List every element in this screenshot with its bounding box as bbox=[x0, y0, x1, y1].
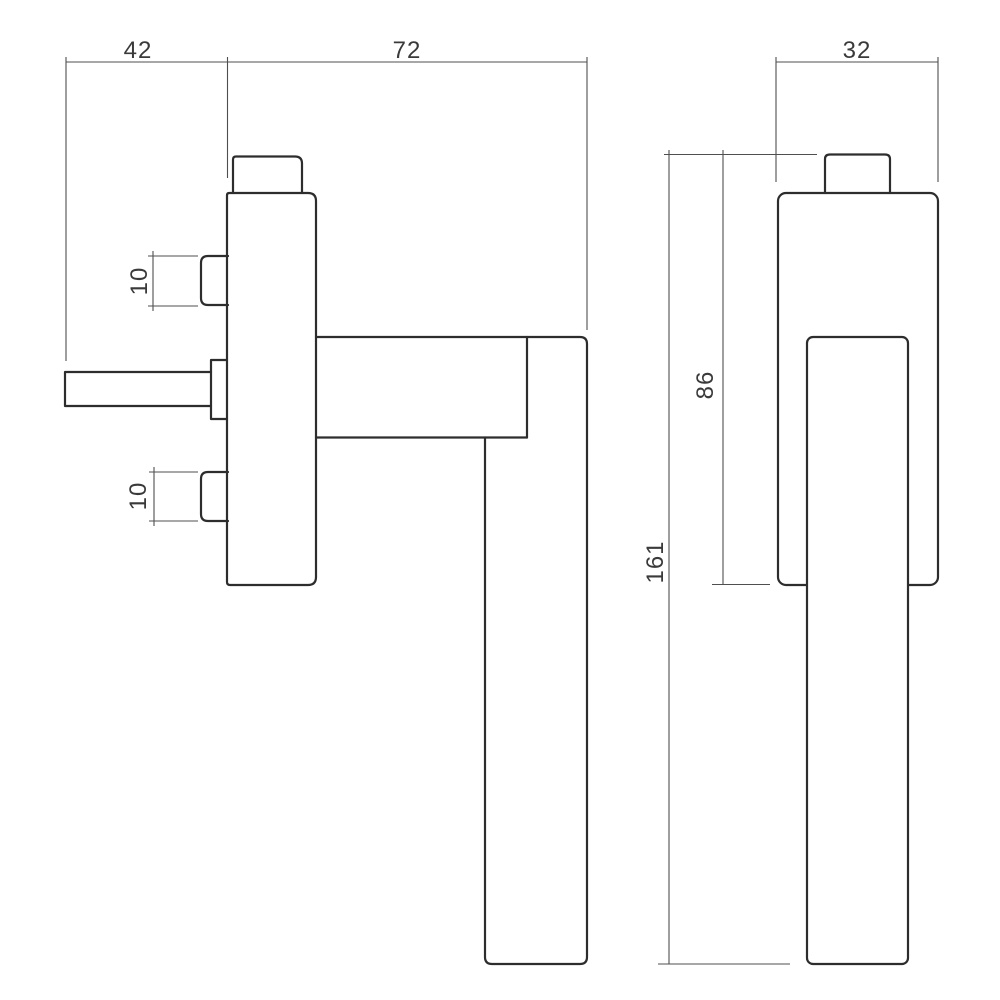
dim-label-32: 32 bbox=[843, 37, 872, 64]
technical-drawing-canvas: 42 72 10 10 bbox=[0, 0, 1000, 1000]
dimension-10-upper: 10 bbox=[126, 251, 198, 311]
dimension-86: 86 bbox=[692, 150, 770, 585]
dim-label-42: 42 bbox=[124, 37, 153, 64]
knob-front bbox=[825, 155, 890, 194]
handle-grip-front bbox=[807, 337, 908, 964]
side-view: 42 72 10 10 bbox=[65, 37, 587, 964]
dim-label-10-upper: 10 bbox=[126, 267, 153, 296]
backplate-side bbox=[227, 193, 316, 585]
dim-label-10-lower: 10 bbox=[125, 482, 152, 511]
handle-lever-side bbox=[316, 337, 587, 964]
dimension-32: 32 bbox=[776, 37, 938, 182]
screw-peg-lower bbox=[201, 472, 228, 521]
screw-peg-upper bbox=[201, 256, 228, 305]
spindle-hub bbox=[211, 360, 227, 419]
knob-side bbox=[233, 157, 302, 194]
dim-label-161: 161 bbox=[642, 540, 669, 583]
dim-label-86: 86 bbox=[692, 371, 719, 400]
dimension-161: 161 bbox=[642, 150, 790, 964]
lever-outer-edge bbox=[316, 337, 587, 964]
dimension-42-72: 42 72 bbox=[66, 37, 587, 361]
front-view: 32 161 86 bbox=[642, 37, 938, 964]
spindle bbox=[65, 372, 211, 406]
dim-label-72: 72 bbox=[393, 37, 422, 64]
dimension-10-lower: 10 bbox=[125, 467, 198, 526]
